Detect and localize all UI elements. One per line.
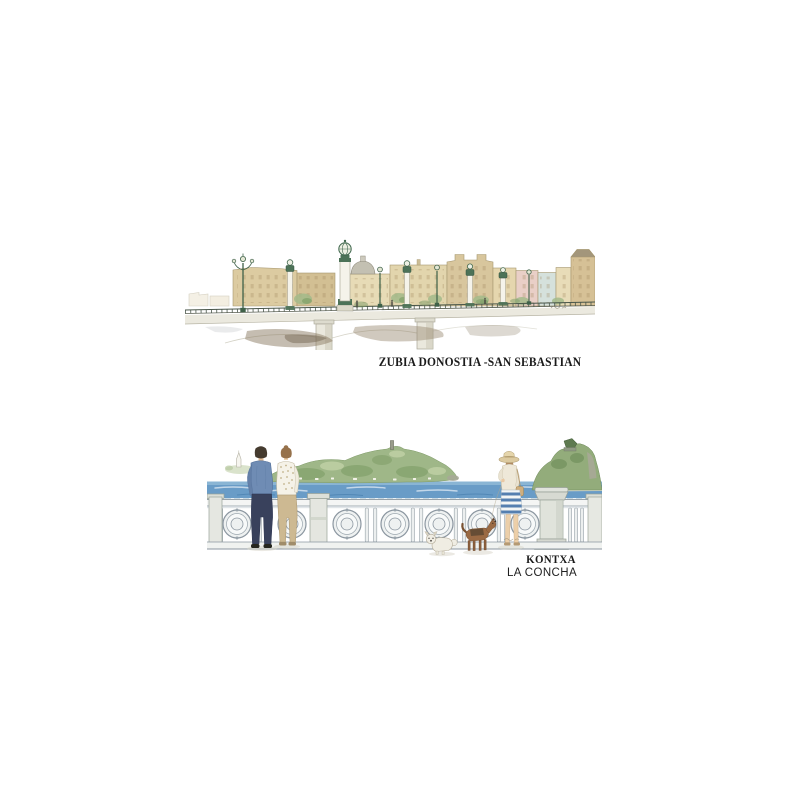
bridge-caption: ZUBIA DONOSTIA -SAN SEBASTIAN [368,355,592,370]
concha-illustration [207,438,602,566]
page: ZUBIA DONOSTIA -SAN SEBASTIAN [0,0,800,800]
concha-caption-basque: KONTXA [504,554,599,566]
left-sketch-buildings [189,293,229,307]
water-reflections [205,325,521,347]
monte-igueldo [532,439,602,492]
bridge-illustration [185,237,595,350]
concha-caption-spanish: LA CONCHA [492,567,592,579]
